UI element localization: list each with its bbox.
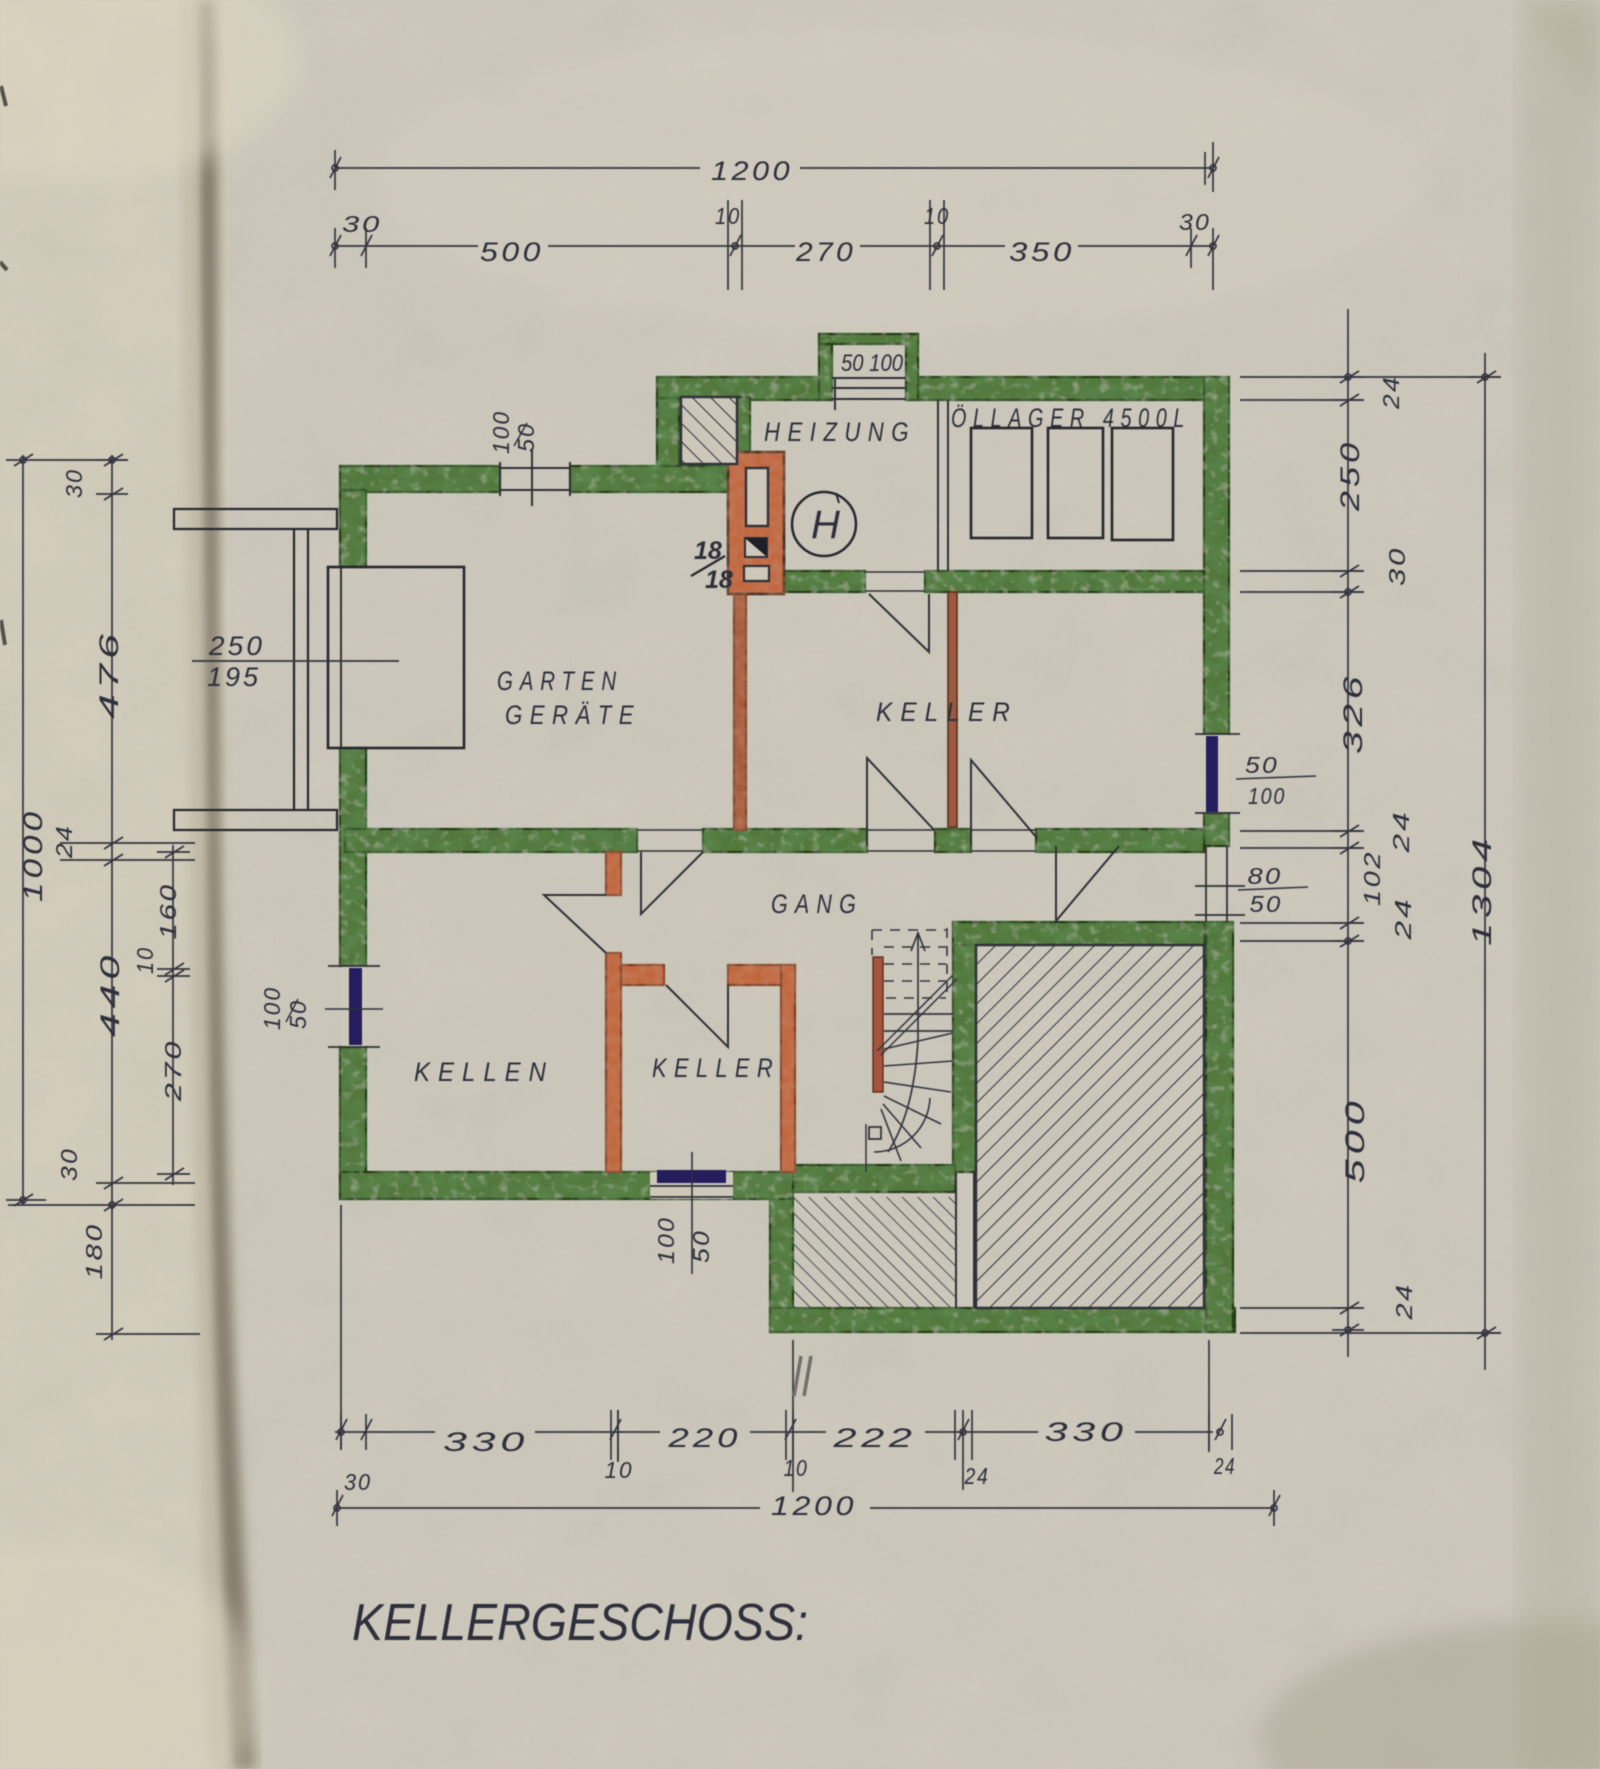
- svg-text:24: 24: [1213, 1453, 1236, 1479]
- svg-text:KELLER: KELLER: [876, 697, 1018, 727]
- svg-text:10: 10: [924, 203, 950, 229]
- svg-text:195: 195: [207, 662, 261, 692]
- svg-text:24: 24: [1388, 810, 1414, 854]
- svg-text:100: 100: [488, 410, 514, 454]
- svg-text:GANG: GANG: [771, 889, 863, 919]
- svg-text:10: 10: [784, 1455, 809, 1481]
- svg-text:270: 270: [160, 1039, 186, 1102]
- svg-text:30: 30: [344, 1469, 372, 1495]
- svg-text:326: 326: [1338, 672, 1368, 754]
- svg-text:50: 50: [285, 999, 311, 1029]
- svg-text:50: 50: [1245, 752, 1279, 778]
- svg-text:330: 330: [1045, 1417, 1128, 1447]
- svg-text:KELLEN: KELLEN: [414, 1057, 554, 1087]
- svg-text:1000: 1000: [18, 808, 48, 902]
- svg-text:1304: 1304: [1467, 834, 1497, 946]
- svg-text:KELLER: KELLER: [652, 1053, 780, 1083]
- svg-text:10: 10: [132, 946, 158, 974]
- svg-text:50: 50: [513, 422, 539, 452]
- svg-text:HEIZUNG: HEIZUNG: [764, 417, 916, 447]
- svg-text:50: 50: [1250, 891, 1283, 917]
- svg-text:102: 102: [1359, 850, 1385, 906]
- svg-text:160: 160: [155, 883, 181, 940]
- svg-text:440: 440: [95, 951, 125, 1037]
- svg-text:18: 18: [705, 566, 733, 594]
- svg-text:100: 100: [653, 1216, 679, 1264]
- svg-text:250: 250: [208, 631, 265, 661]
- svg-text:30: 30: [1179, 209, 1211, 235]
- svg-text:330: 330: [443, 1427, 529, 1457]
- svg-text:500: 500: [480, 237, 544, 267]
- svg-text:30: 30: [342, 211, 382, 237]
- svg-text:1200: 1200: [771, 1491, 857, 1521]
- svg-text:1200: 1200: [711, 156, 793, 186]
- svg-text:ÖLLAGER 4500L: ÖLLAGER 4500L: [951, 403, 1191, 433]
- svg-text:30: 30: [61, 468, 87, 498]
- svg-text:220: 220: [667, 1423, 741, 1453]
- svg-text:24: 24: [964, 1463, 990, 1489]
- svg-text:250: 250: [1335, 439, 1365, 512]
- svg-text:350: 350: [1009, 237, 1075, 267]
- svg-text:24: 24: [1378, 375, 1404, 410]
- svg-text:GERÄTE: GERÄTE: [505, 700, 641, 730]
- svg-text:500: 500: [1340, 1097, 1370, 1184]
- svg-text:476: 476: [94, 629, 124, 719]
- svg-text:100: 100: [259, 986, 285, 1030]
- svg-text:180: 180: [81, 1223, 107, 1280]
- svg-text:222: 222: [832, 1423, 917, 1453]
- svg-text:50: 50: [688, 1229, 714, 1263]
- svg-text:KELLERGESCHOSS:: KELLERGESCHOSS:: [352, 1594, 808, 1652]
- svg-text:80: 80: [1248, 863, 1283, 889]
- svg-text:270: 270: [795, 237, 856, 267]
- svg-text:10: 10: [605, 1457, 634, 1483]
- svg-text:24: 24: [51, 824, 77, 859]
- svg-text:24: 24: [1390, 897, 1416, 941]
- svg-text:30: 30: [56, 1147, 82, 1181]
- svg-text:24: 24: [1391, 1283, 1417, 1321]
- svg-text:30: 30: [1384, 546, 1410, 586]
- svg-text:10: 10: [715, 203, 741, 229]
- svg-text:H: H: [811, 503, 840, 547]
- svg-text:50 100: 50 100: [841, 350, 904, 377]
- svg-text:100: 100: [1248, 783, 1286, 809]
- svg-text:GARTEN: GARTEN: [497, 666, 623, 696]
